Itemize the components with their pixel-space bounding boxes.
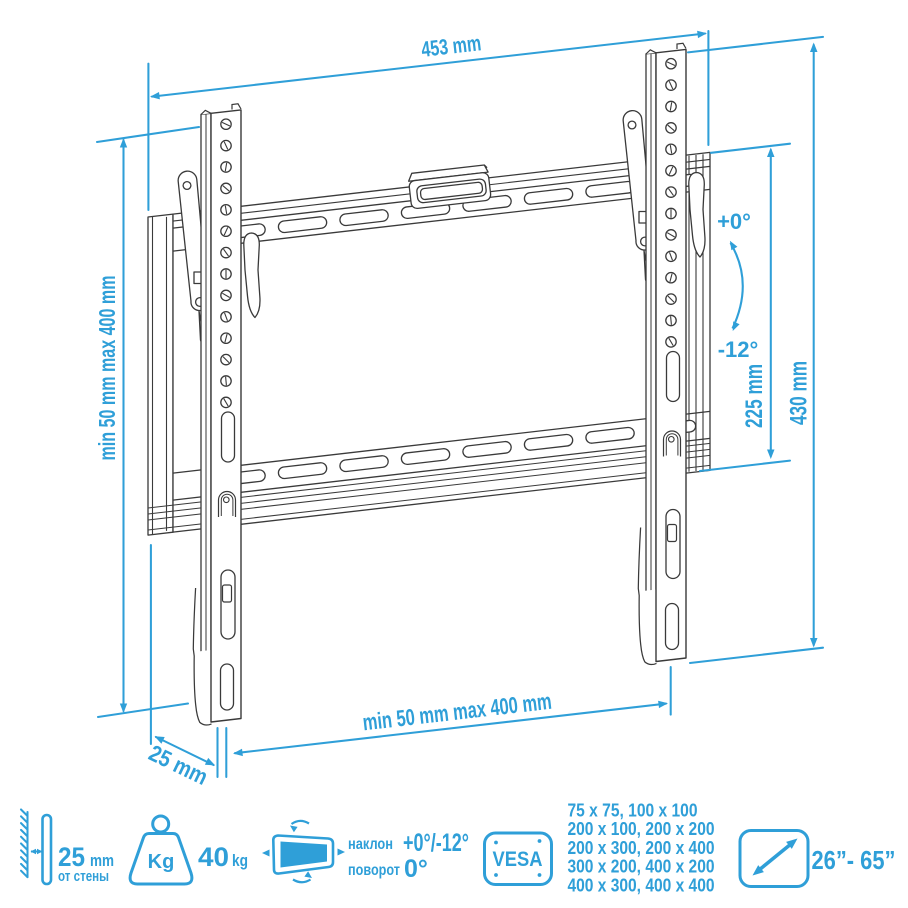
svg-text:Kg: Kg [148, 851, 175, 873]
svg-text:+0°: +0° [717, 209, 751, 234]
svg-text:40: 40 [198, 842, 229, 872]
svg-text:kg: kg [232, 852, 248, 870]
svg-text:0°: 0° [404, 855, 428, 883]
svg-text:min 50 mm max 400 mm: min 50 mm max 400 mm [94, 276, 120, 461]
svg-text:от стены: от стены [58, 869, 109, 885]
svg-text:VESA: VESA [493, 847, 543, 871]
svg-text:+0°/-12°: +0°/-12° [403, 829, 469, 857]
svg-text:-12°: -12° [718, 337, 759, 362]
svg-text:430 mm: 430 mm [786, 361, 813, 425]
svg-text:26”- 65”: 26”- 65” [812, 845, 896, 875]
svg-text:поворот: поворот [348, 862, 400, 879]
svg-text:25: 25 [58, 842, 85, 872]
svg-text:mm: mm [90, 852, 114, 870]
svg-text:400 x 300, 400 x 400: 400 x 300, 400 x 400 [568, 874, 715, 895]
svg-text:наклон: наклон [348, 836, 393, 853]
svg-text:225 mm: 225 mm [741, 364, 768, 428]
